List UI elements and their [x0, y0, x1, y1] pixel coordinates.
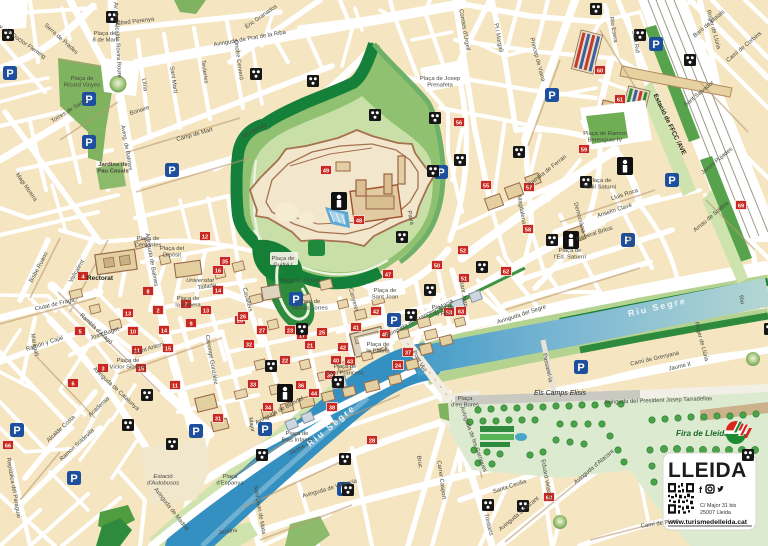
svg-text:47: 47 [385, 273, 391, 279]
svg-text:38: 38 [329, 406, 335, 412]
svg-text:58: 58 [525, 228, 531, 234]
svg-text:44: 44 [311, 392, 318, 398]
svg-text:62: 62 [503, 270, 509, 276]
svg-text:Jardins dePau Casals: Jardins dePau Casals [97, 162, 129, 175]
svg-text:42: 42 [340, 346, 346, 352]
svg-text:P: P [548, 90, 555, 102]
svg-text:50: 50 [434, 264, 440, 270]
svg-text:P: P [577, 362, 584, 374]
svg-text:63: 63 [458, 310, 464, 316]
svg-text:42: 42 [373, 310, 379, 316]
svg-text:36: 36 [298, 384, 304, 390]
svg-text:33: 33 [250, 383, 256, 389]
svg-text:37: 37 [405, 351, 411, 357]
svg-text:Plaça deCervantes: Plaça deCervantes [135, 236, 162, 249]
svg-text:13: 13 [125, 312, 131, 318]
svg-text:21: 21 [307, 344, 313, 350]
svg-text:2: 2 [156, 309, 159, 315]
svg-text:16: 16 [215, 269, 221, 275]
svg-text:23: 23 [287, 329, 293, 335]
svg-text:LLEIDA: LLEIDA [668, 459, 747, 482]
svg-text:P: P [192, 426, 199, 438]
svg-text:14: 14 [215, 289, 222, 295]
svg-text:14: 14 [161, 329, 168, 335]
svg-text:Els Camps Elisis: Els Camps Elisis [534, 390, 587, 397]
svg-text:15: 15 [165, 347, 171, 353]
svg-text:Plaça delDipòsit: Plaça delDipòsit [160, 246, 184, 259]
svg-text:25: 25 [319, 331, 325, 337]
svg-text:5: 5 [78, 330, 81, 336]
svg-text:12: 12 [202, 235, 208, 241]
svg-text:Plaça deSant Joan: Plaça deSant Joan [372, 288, 399, 301]
svg-text:32: 32 [246, 343, 252, 349]
svg-text:31: 31 [215, 417, 221, 423]
svg-text:Fira de Lleida: Fira de Lleida [676, 429, 729, 438]
svg-text:27: 27 [259, 329, 265, 335]
svg-text:56: 56 [456, 121, 462, 127]
svg-text:69: 69 [738, 204, 744, 210]
svg-text:55: 55 [483, 184, 489, 190]
svg-text:60: 60 [597, 69, 603, 75]
svg-text:Plaça deGuifré I: Plaça deGuifré I [272, 256, 296, 269]
svg-text:66: 66 [5, 444, 11, 450]
svg-text:9: 9 [189, 322, 192, 328]
svg-text:P: P [261, 424, 268, 436]
svg-text:P: P [13, 425, 20, 437]
svg-text:22: 22 [282, 359, 288, 365]
svg-text:P: P [85, 137, 92, 149]
svg-text:Plaça de l'Ereta: Plaça de l'Ereta [279, 278, 321, 284]
svg-text:www.turismedelleida.cat: www.turismedelleida.cat [667, 519, 748, 526]
svg-text:11: 11 [172, 384, 178, 390]
svg-text:Plaça dela Paeria: Plaça dela Paeria [366, 342, 390, 355]
svg-text:41: 41 [353, 326, 359, 332]
svg-text:6: 6 [71, 382, 74, 388]
svg-text:10: 10 [130, 330, 136, 336]
svg-text:Rectorat: Rectorat [87, 275, 114, 282]
svg-text:P: P [390, 315, 397, 327]
svg-text:26: 26 [240, 315, 246, 321]
svg-text:13: 13 [203, 309, 209, 315]
svg-text:59: 59 [581, 148, 587, 154]
svg-text:34: 34 [265, 406, 272, 412]
svg-text:P: P [6, 68, 13, 80]
svg-text:52: 52 [460, 249, 466, 255]
svg-text:24: 24 [395, 364, 402, 370]
svg-text:C/ Major 31 bis: C/ Major 31 bis [700, 503, 737, 509]
svg-text:8: 8 [146, 290, 149, 296]
svg-text:25007 Lleida: 25007 Lleida [700, 510, 731, 516]
svg-text:P: P [70, 473, 77, 485]
svg-text:49: 49 [323, 169, 329, 175]
svg-text:P: P [652, 39, 659, 51]
svg-text:61: 61 [617, 98, 623, 104]
svg-text:P: P [668, 175, 675, 187]
svg-text:P: P [292, 294, 299, 306]
svg-text:P: P [168, 165, 175, 177]
svg-text:Plaça dela Panera: Plaça dela Panera [175, 296, 201, 309]
svg-text:28: 28 [369, 439, 375, 445]
svg-text:48: 48 [356, 219, 362, 225]
svg-text:Plaça de RamonBerenguer IV: Plaça de RamonBerenguer IV [583, 131, 627, 144]
svg-text:35: 35 [222, 260, 228, 266]
